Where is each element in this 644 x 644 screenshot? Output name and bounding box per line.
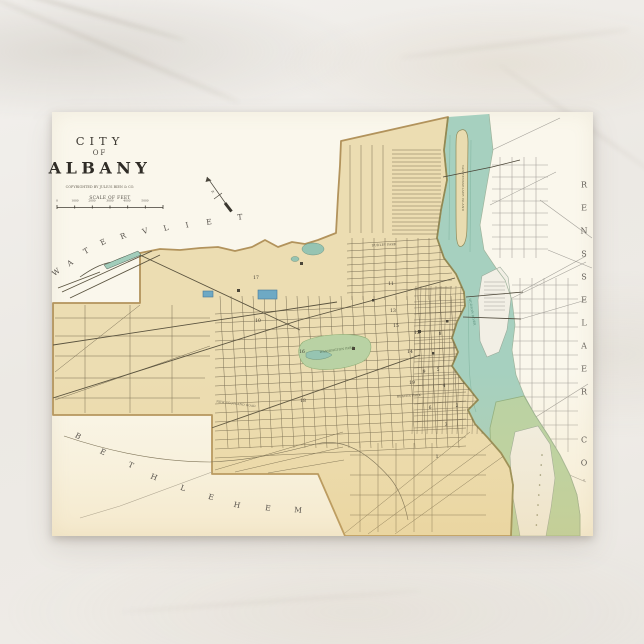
- scale-bar: [57, 205, 163, 209]
- channel-dot: [536, 514, 538, 516]
- photo-stage: { "postcard": { "title_line1": "CITY", "…: [0, 0, 644, 644]
- small-reservoir: [203, 291, 213, 297]
- channel-dot: [540, 474, 542, 476]
- van-rensselaer-island: [456, 130, 468, 247]
- tivoli-pond: [302, 243, 324, 255]
- albany-map-graphic: [0, 0, 644, 644]
- channel-dot: [539, 484, 541, 486]
- southwest-road: [80, 472, 212, 518]
- channel-dot: [538, 494, 540, 496]
- city-limits-polygon: [53, 117, 513, 536]
- channel-dot: [541, 454, 543, 456]
- channel-dot: [540, 464, 542, 466]
- channel-dot: [537, 504, 539, 506]
- channel-dot: [536, 524, 538, 526]
- compass-needle: [206, 177, 232, 212]
- small-pond: [291, 257, 299, 262]
- reservoir: [258, 290, 277, 299]
- south-island: [510, 426, 555, 536]
